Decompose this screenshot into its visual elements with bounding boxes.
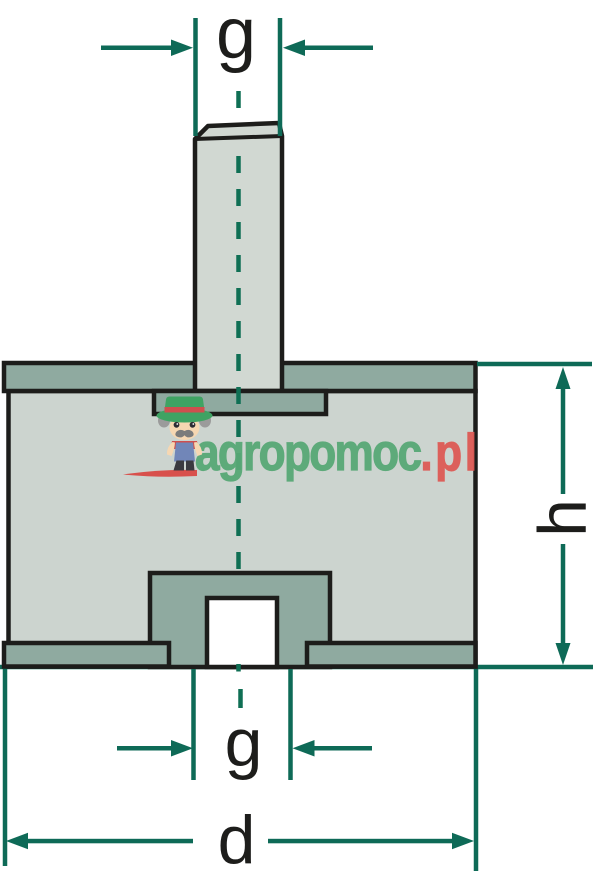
svg-text:d: d [218,802,256,878]
svg-text:h: h [525,499,600,537]
svg-text:agropomoc.pl: agropomoc.pl [195,424,480,482]
svg-text:g: g [216,0,256,74]
svg-text:g: g [225,705,263,781]
